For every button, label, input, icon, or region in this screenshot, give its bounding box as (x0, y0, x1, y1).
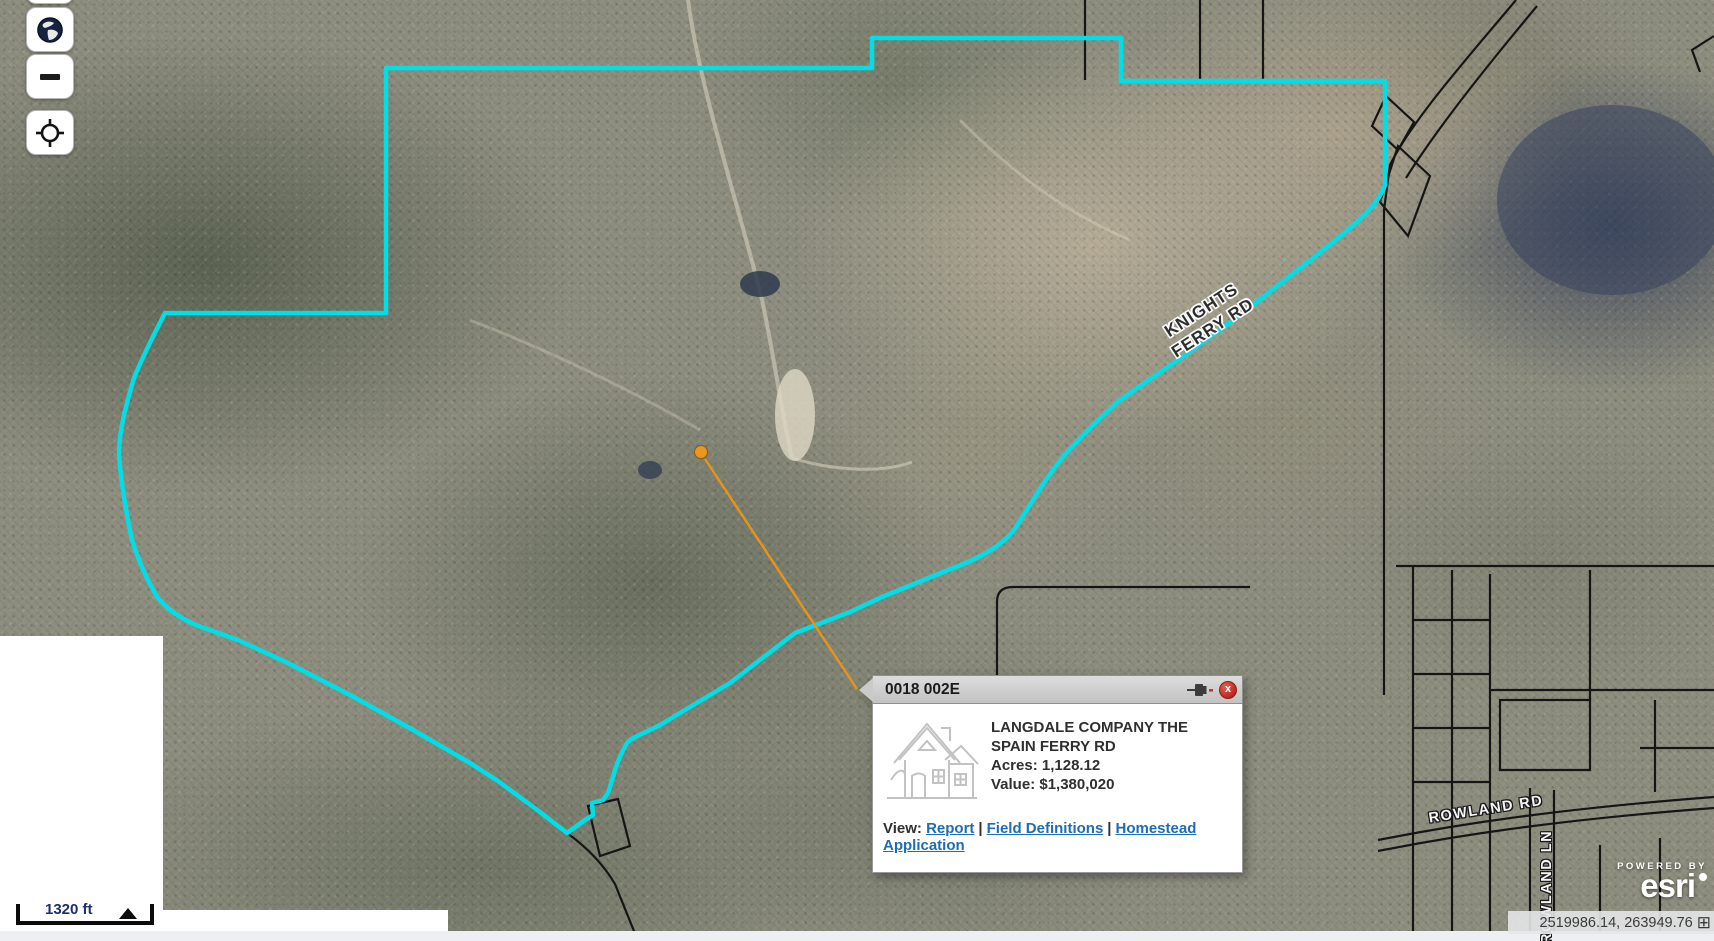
report-link[interactable]: Report (926, 820, 974, 837)
map-viewer: KNIGHTS FERRY RD ROWLAND RD ROWLAND LN 0… (0, 0, 1714, 941)
locate-button[interactable] (26, 110, 74, 155)
field-definitions-link[interactable]: Field Definitions (987, 820, 1104, 837)
scale-bar[interactable]: 1320 ft (16, 898, 160, 928)
globe-home-button[interactable] (26, 7, 74, 52)
lake (1497, 105, 1714, 295)
minus-icon (40, 74, 60, 80)
site-address: SPAIN FERRY RD (991, 737, 1188, 756)
view-label: View: (883, 820, 922, 837)
cleared-field-patch (775, 369, 815, 461)
pond (740, 271, 780, 297)
zoom-in-button[interactable] (26, 0, 74, 4)
acres-row: Acres: 1,128.12 (991, 756, 1188, 775)
bottom-edge-strip (0, 931, 1714, 941)
coordinate-readout: 2519986.14, 263949.76 (1540, 915, 1693, 931)
leader-line (705, 459, 857, 689)
missing-tile-gap (0, 636, 163, 941)
esri-attribution: POWERED BY esri (1617, 861, 1707, 900)
value-row: Value: $1,380,020 (991, 775, 1188, 794)
view-links-row: View: Report|Field Definitions|Homestead… (883, 820, 1230, 854)
pin-popup-button[interactable] (1186, 681, 1213, 699)
esri-wordmark: esri (1617, 872, 1707, 900)
popup-header[interactable]: 0018 002E x (872, 675, 1243, 704)
expand-coordinates-icon[interactable]: ⊞ (1697, 914, 1711, 931)
owner-name: LANGDALE COMPANY THE (991, 718, 1188, 737)
zoom-out-button[interactable] (26, 54, 74, 99)
pushpin-icon (1186, 681, 1213, 699)
scale-units-caret-icon[interactable] (119, 908, 137, 919)
esri-logo-dot (1699, 873, 1707, 881)
close-x-icon: x (1225, 684, 1231, 695)
parcel-popup: 0018 002E x (872, 675, 1243, 873)
close-popup-button[interactable]: x (1219, 681, 1237, 699)
globe-icon (36, 16, 64, 44)
popup-tail (859, 678, 873, 702)
popup-body: LANGDALE COMPANY THE SPAIN FERRY RD Acre… (872, 704, 1243, 873)
map-vector-overlay (0, 0, 1714, 941)
crosshair-locate-icon (35, 118, 65, 148)
popup-title: 0018 002E (885, 681, 1180, 699)
coordinate-bar: 2519986.14, 263949.76 ⊞ (1508, 911, 1714, 934)
scale-label: 1320 ft (45, 901, 93, 918)
selected-parcel-marker[interactable] (695, 446, 708, 459)
pond-small (638, 461, 662, 479)
house-sketch-icon (881, 718, 981, 804)
